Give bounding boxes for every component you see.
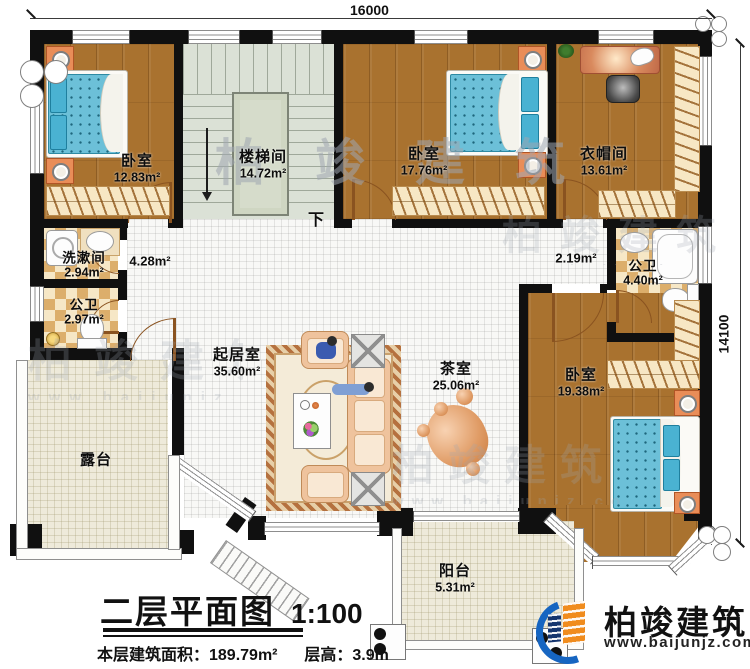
wall [118, 270, 127, 300]
room-label-bedroom1: 卧室 12.83m² [114, 154, 161, 185]
wardrobe [674, 46, 700, 192]
wall [334, 219, 352, 228]
pillow [521, 114, 539, 149]
room-label-bath-left: 公卫 2.97m² [64, 297, 104, 326]
wardrobe [598, 190, 676, 218]
floor-plan-canvas: 16000 14100 柏竣建筑 www.baijunjz.com 柏竣建筑 w… [0, 0, 750, 669]
decor-stone [417, 424, 430, 437]
nightstand [674, 492, 700, 514]
wardrobe [607, 360, 700, 389]
stair-landing [183, 44, 334, 95]
sofa-main [347, 358, 391, 474]
room-label-terrace: 露台 [80, 453, 112, 470]
floor-drain [46, 332, 60, 346]
room-label-bedroom3: 卧室 19.38m² [558, 368, 605, 399]
person-head [364, 382, 374, 392]
area-annotation-corridor: 2.19m² [555, 252, 596, 267]
stair-arrow-head [202, 192, 212, 201]
sink [86, 231, 114, 252]
decor-stone [434, 402, 448, 416]
dimension-line-right [740, 45, 741, 545]
wall [44, 279, 118, 288]
floor-area-text: 本层建筑面积：189.79m² 层高：3.9m [97, 641, 389, 665]
window [414, 30, 468, 44]
wall [607, 228, 616, 290]
armchair [301, 465, 349, 503]
company-logo [536, 594, 596, 654]
corner-column [44, 60, 68, 84]
room-label-washroom: 洗漱间 2.94m² [62, 250, 106, 279]
wall [392, 219, 547, 228]
nightstand [518, 152, 546, 178]
page-title: 二层平面图 [100, 585, 275, 633]
corner-column [713, 543, 731, 561]
pillow [50, 115, 67, 150]
bed-mattress [613, 419, 662, 509]
window [188, 30, 240, 44]
room-label-bedroom2: 卧室 17.76m² [401, 147, 448, 178]
company-website: www.baijunjz.com [604, 634, 750, 651]
terrace-parapet [16, 548, 182, 560]
corner-column [713, 526, 731, 544]
wardrobe [674, 300, 700, 364]
room-label-stairwell: 楼梯间 14.72m² [239, 150, 287, 181]
side-table [351, 334, 385, 368]
corner-column [20, 84, 44, 108]
plant [558, 44, 574, 58]
wall [174, 30, 183, 228]
logo-building-navy [548, 613, 561, 642]
stair-arrow-line [206, 128, 208, 192]
side-table [351, 472, 385, 506]
wall [334, 30, 343, 228]
room-label-living: 起居室 35.60m² [213, 348, 261, 379]
wall [172, 348, 184, 455]
title-underline [103, 628, 303, 632]
window [264, 522, 380, 535]
title-underline-thin [103, 635, 303, 637]
wardrobe [392, 186, 545, 216]
dimension-top-value: 16000 [350, 2, 389, 18]
flower-decor [302, 420, 320, 438]
terrace-parapet [16, 360, 28, 558]
stair-down-label: 下 [308, 212, 324, 230]
title-block: 二层平面图 1:100 [100, 585, 420, 625]
wall [607, 322, 616, 333]
nightstand [674, 390, 700, 416]
desk-chair [606, 75, 640, 103]
balcony-door-glazing [413, 511, 520, 522]
person-head [327, 336, 337, 346]
dimension-right-value: 14100 [715, 315, 731, 354]
window [72, 30, 130, 44]
room-label-cloakroom: 衣帽间 13.61m² [580, 147, 628, 178]
area-annotation-hall: 4.28m² [129, 255, 170, 270]
window [598, 30, 654, 44]
window [272, 30, 322, 44]
dimension-line-top [30, 18, 712, 19]
floor-height-text: 层高：3.9m [304, 647, 388, 664]
wall [30, 219, 128, 228]
window [30, 286, 44, 322]
wall [600, 284, 607, 293]
decor-stone [466, 462, 480, 476]
nightstand [46, 158, 74, 184]
corner-column [711, 31, 727, 47]
room-label-tea: 茶室 25.06m² [433, 362, 480, 393]
corner-column [20, 60, 44, 84]
sink [620, 232, 649, 253]
wall [603, 219, 712, 228]
toilet-tank [77, 338, 107, 349]
wall [547, 219, 563, 228]
pillow [663, 459, 680, 491]
wall [118, 332, 127, 348]
pillow [663, 425, 680, 457]
logo-building-orange [563, 601, 585, 646]
wall [547, 30, 556, 228]
window [698, 226, 712, 284]
pillow [521, 77, 539, 112]
bed-sheet [498, 74, 519, 150]
terrace-parapet [168, 455, 180, 550]
drawing-scale: 1:100 [291, 598, 363, 630]
stair-flight-right [285, 94, 334, 212]
bed-sheet [100, 74, 123, 152]
room-label-balcony: 阳台 5.31m² [435, 564, 475, 595]
wall [519, 284, 528, 508]
room-label-bath-right: 公卫 4.40m² [623, 258, 663, 287]
wardrobe [46, 186, 170, 216]
nightstand [518, 46, 546, 72]
coffee-table [293, 393, 331, 449]
wall [30, 348, 132, 360]
window [698, 56, 712, 146]
